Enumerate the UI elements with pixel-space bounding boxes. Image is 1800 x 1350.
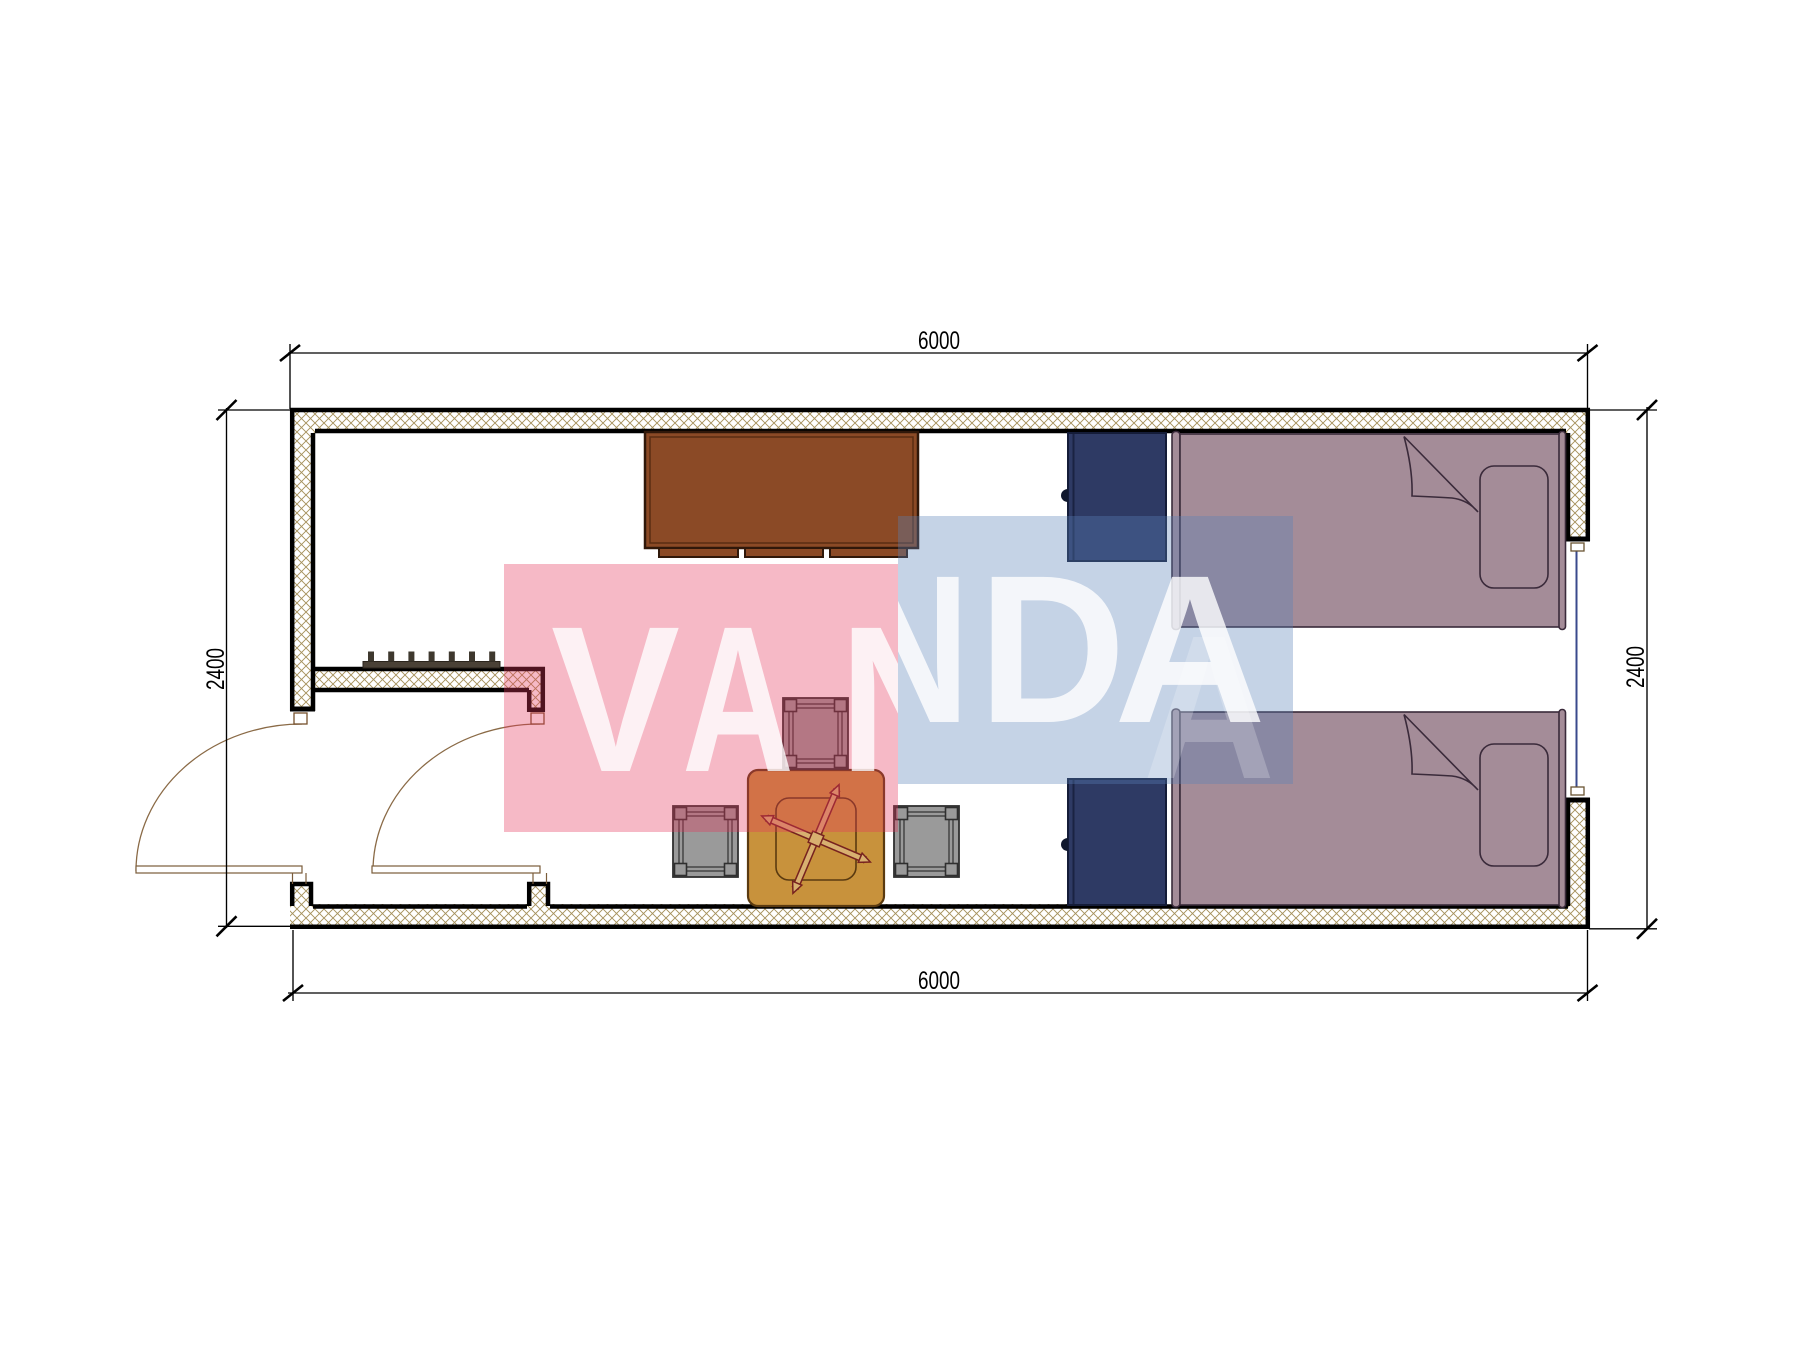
svg-text:A: A bbox=[1143, 593, 1275, 822]
svg-text:2400: 2400 bbox=[202, 648, 230, 690]
svg-text:A: A bbox=[682, 584, 794, 816]
svg-text:D: D bbox=[978, 531, 1126, 767]
svg-text:2400: 2400 bbox=[1622, 646, 1650, 688]
svg-text:6000: 6000 bbox=[918, 327, 960, 355]
svg-text:V: V bbox=[551, 584, 680, 816]
svg-text:6000: 6000 bbox=[918, 967, 960, 995]
